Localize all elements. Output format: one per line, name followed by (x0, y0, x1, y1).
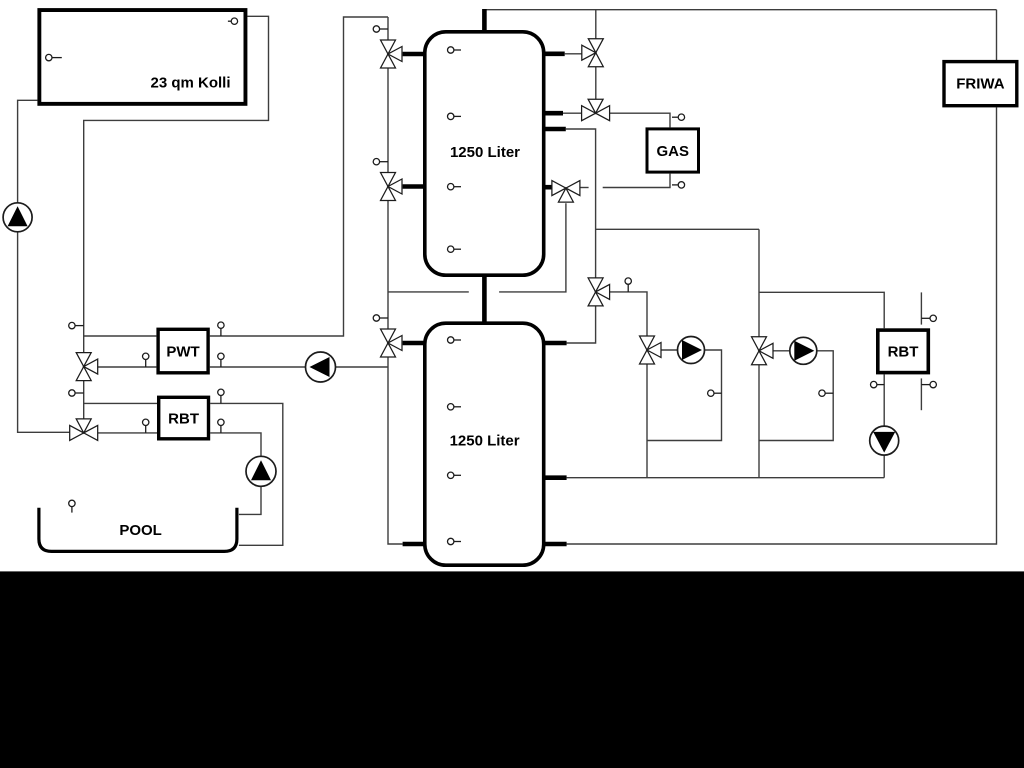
svg-text:23 qm Kolli: 23 qm Kolli (150, 75, 230, 92)
svg-text:RBT: RBT (168, 410, 199, 427)
svg-text:PWT: PWT (166, 343, 199, 360)
svg-text:1250 Liter: 1250 Liter (450, 433, 520, 450)
svg-text:POOL: POOL (119, 522, 162, 539)
svg-text:GAS: GAS (656, 143, 689, 160)
svg-text:1250 Liter: 1250 Liter (450, 144, 520, 161)
svg-text:RBT: RBT (888, 344, 919, 361)
svg-text:FRIWA: FRIWA (956, 75, 1004, 92)
